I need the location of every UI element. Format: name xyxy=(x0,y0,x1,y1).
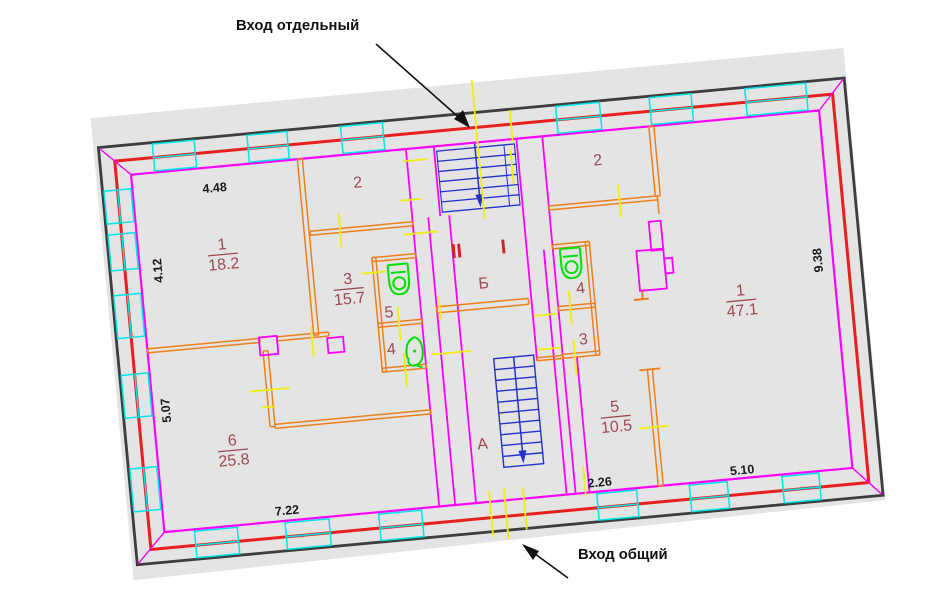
svg-text:4: 4 xyxy=(575,280,586,298)
svg-text:3: 3 xyxy=(578,331,589,349)
svg-text:4: 4 xyxy=(386,341,397,359)
svg-text:5: 5 xyxy=(384,304,395,322)
svg-text:25.8: 25.8 xyxy=(218,451,251,471)
svg-text:А: А xyxy=(477,436,490,454)
svg-text:1: 1 xyxy=(735,282,746,300)
svg-text:5.10: 5.10 xyxy=(729,462,755,478)
svg-text:Вход отдельный: Вход отдельный xyxy=(236,18,359,34)
svg-text:3: 3 xyxy=(343,271,354,289)
svg-text:1: 1 xyxy=(217,236,228,254)
svg-text:9.38: 9.38 xyxy=(810,247,826,273)
svg-text:Б: Б xyxy=(478,275,490,293)
svg-text:7.22: 7.22 xyxy=(274,503,300,519)
svg-text:4.48: 4.48 xyxy=(202,180,228,196)
svg-text:2.26: 2.26 xyxy=(587,474,613,490)
svg-text:18.2: 18.2 xyxy=(208,255,241,275)
svg-text:II: II xyxy=(450,240,463,263)
svg-text:2: 2 xyxy=(593,152,604,170)
svg-text:2: 2 xyxy=(353,174,364,192)
svg-text:10.5: 10.5 xyxy=(600,417,633,437)
svg-text:47.1: 47.1 xyxy=(726,301,759,321)
svg-text:15.7: 15.7 xyxy=(333,290,366,310)
svg-text:Вход общий: Вход общий xyxy=(578,547,668,563)
svg-text:4.12: 4.12 xyxy=(150,258,166,284)
svg-text:5: 5 xyxy=(610,398,621,416)
svg-text:5.07: 5.07 xyxy=(158,398,174,424)
svg-text:6: 6 xyxy=(227,432,238,450)
